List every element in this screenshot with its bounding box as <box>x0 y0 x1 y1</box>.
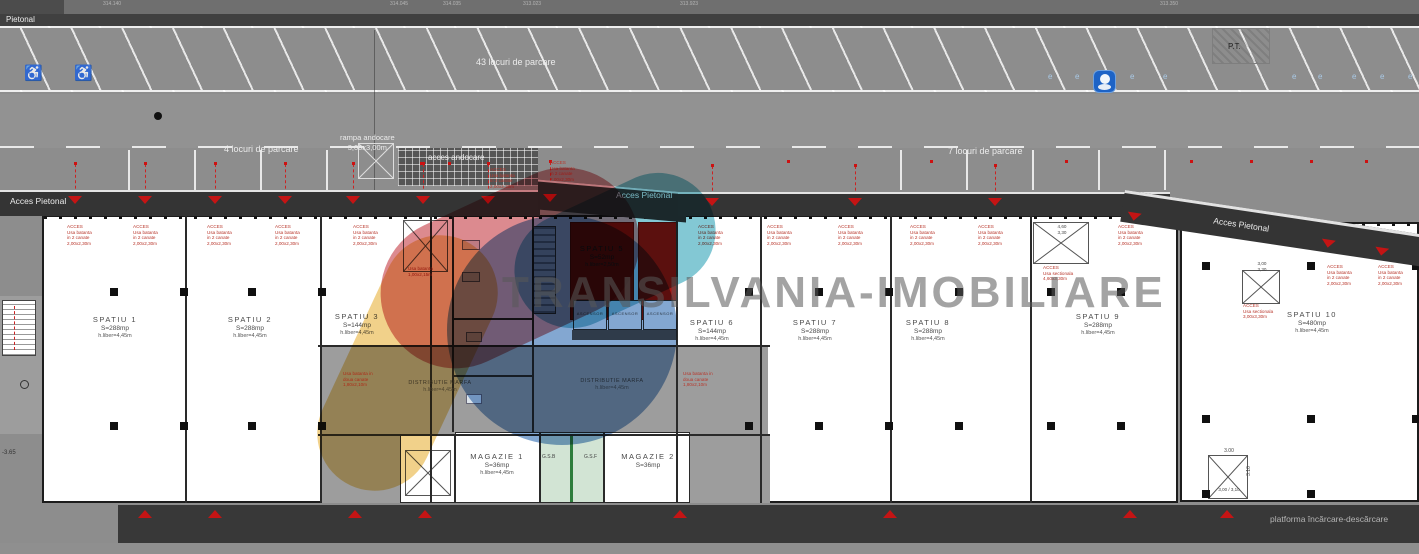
loading-arrow-icon <box>673 510 687 518</box>
entrance-arrow-icon <box>988 198 1002 206</box>
column-marker <box>1047 288 1055 296</box>
door-annotation: ACCESUsa batantain 2 canate2,00x2,30m <box>67 224 92 247</box>
entrance-arrow-icon <box>208 196 222 204</box>
door-annotation: ACCESUsa batantain 2 canate2,00x2,30m <box>767 224 792 247</box>
elevator-cell: ASCENSOR <box>573 300 607 330</box>
elevation-label: 314.045 <box>390 1 408 7</box>
elevation-label: 314.035 <box>443 1 461 7</box>
entrance-arrow-icon <box>848 198 862 206</box>
loading-arrow-icon <box>1220 510 1234 518</box>
red-marker <box>420 162 423 165</box>
red-marker <box>1190 160 1193 163</box>
distribution-corridor <box>322 347 768 434</box>
door-annotation: ACCESUsa batantain 2 canate2,00x2,30m <box>353 224 378 247</box>
loading-arrow-icon <box>138 510 152 518</box>
left-annex-stair <box>2 300 36 356</box>
column-marker <box>815 422 823 430</box>
elevator-threshold <box>572 330 678 340</box>
elevation-label: 314.140 <box>103 1 121 7</box>
top-pedestrian-band <box>0 14 1419 26</box>
column-marker <box>180 422 188 430</box>
parking-stalls-left <box>128 150 390 190</box>
e-parking-marker: e <box>1408 72 1412 81</box>
door-annotation: Usa batanta indoua canate1,80x2,10m <box>343 371 373 388</box>
dim-label: 3,00 / 3,10 <box>1213 487 1245 492</box>
parking-top-label: 43 locuri de parcare <box>476 57 556 69</box>
red-marker <box>711 164 714 167</box>
dim-label: 3.00 <box>1215 448 1243 454</box>
red-marker <box>854 164 857 167</box>
column-marker <box>1307 490 1315 498</box>
column-marker <box>1202 262 1210 270</box>
crossed-box-symbol <box>405 450 451 496</box>
column-marker <box>1047 422 1055 430</box>
access-right-label: Acces Pietonal <box>1213 215 1270 234</box>
driveway <box>0 94 1419 148</box>
column-marker <box>318 288 326 296</box>
e-parking-marker: e <box>1292 72 1296 81</box>
room-label-spatiu-10: SPATIU 10S=480mph.liber=4,45m <box>1272 310 1352 335</box>
entrance-arrow-icon <box>68 196 82 204</box>
column-marker <box>180 288 188 296</box>
entrance-arrow-icon <box>138 196 152 204</box>
door-annotation: ACCESUsa batantain 2 canate2,00x2,30m <box>1327 264 1352 287</box>
pedestrian-band-right <box>678 192 1170 216</box>
loading-arrow-icon <box>208 510 222 518</box>
room-label-spatiu-2: SPATIU 2S=288mph.liber=4,45m <box>210 315 290 340</box>
access-left-label: Acces Pietonal <box>10 196 66 207</box>
e-parking-marker: e <box>1075 72 1079 81</box>
entrance-arrow-icon <box>481 196 495 204</box>
elevation-label: 313.350 <box>1160 1 1178 7</box>
room-label-spatiu-1: SPATIU 1S=288mph.liber=4,45m <box>75 315 155 340</box>
column-marker <box>745 422 753 430</box>
label-gsb: G.S.B <box>542 454 555 461</box>
red-marker <box>1365 160 1368 163</box>
red-marker <box>144 162 147 165</box>
parking-left-label: 4 locuri de parcare <box>224 144 299 156</box>
distribution-corridor <box>322 434 400 503</box>
e-parking-marker: e <box>1318 72 1322 81</box>
red-marker <box>994 164 997 167</box>
loading-arrow-icon <box>418 510 432 518</box>
entrance-arrow-icon <box>1374 247 1389 257</box>
red-marker <box>214 162 217 165</box>
pt-label: P.T. <box>1228 42 1241 52</box>
label-distributie-2: DISTRIBUTIE MARFA h.liber=4,45m <box>572 378 652 392</box>
room-label-spatiu-7: SPATIU 7S=288mph.liber=4,45m <box>775 318 855 343</box>
e-parking-marker: e <box>1163 72 1167 81</box>
room-label-spatiu-5: SPATIU 5 S=52mp h.liber=2,50m <box>562 244 642 269</box>
dim-label: 3,003,30 <box>1248 261 1276 272</box>
room-label-spatiu-8: SPATIU 8S=288mph.liber=4,45m <box>888 318 968 343</box>
manhole-symbol <box>20 380 29 389</box>
parking-stalls-right <box>900 150 1170 190</box>
red-marker <box>930 160 933 163</box>
e-parking-marker: e <box>1380 72 1384 81</box>
column-marker <box>1307 262 1315 270</box>
access-center-label: Acces Pietonal <box>616 190 672 201</box>
red-marker <box>1065 160 1068 163</box>
crossed-box-symbol <box>1242 270 1280 304</box>
dock-label: acces andocare <box>428 153 484 163</box>
entrance-arrow-icon <box>1321 239 1336 249</box>
column-marker <box>1117 288 1125 296</box>
red-marker <box>352 162 355 165</box>
bottom-road <box>0 543 1419 554</box>
door-annotation: Usa batanta1,00x2,15m <box>408 266 433 277</box>
ramp-label: rampa andocare3,00x3,00m <box>340 133 395 153</box>
staircase <box>532 226 556 314</box>
crossed-box-symbol <box>403 220 448 272</box>
column-marker <box>745 288 753 296</box>
room-label-magazie-2: MAGAZIE 2S=36mp <box>608 452 688 470</box>
label-distributie-1: DISTRIBUTIE MARFA h.liber=4,45m <box>400 380 480 394</box>
level-label: -3.65 <box>2 450 16 458</box>
entrance-arrow-icon <box>416 196 430 204</box>
door-annotation: ACCESUsa sectionala3,00x3,30m <box>1243 303 1273 320</box>
door-annotation: ACCESUsa batantain 2 canate2,00x2,30m <box>698 224 723 247</box>
column-marker <box>110 422 118 430</box>
door-annotation: ACCESUsa batantain 2 canate2,00x2,30m <box>550 160 575 183</box>
entrance-arrow-icon <box>543 194 557 202</box>
column-marker <box>1412 415 1419 423</box>
room-label-spatiu-6: SPATIU 6S=144mph.liber=4,45m <box>672 318 752 343</box>
room-label-spatiu-3: SPATIU 3S=144mph.liber=4,45m <box>317 312 397 337</box>
parking-row-top <box>0 26 1419 92</box>
column-marker <box>1202 415 1210 423</box>
wheelchair-icon: ♿ <box>74 64 93 82</box>
door-annotation: Usa batanta indoua canate1,80x2,10m <box>683 371 713 388</box>
red-marker <box>74 162 77 165</box>
red-marker <box>448 162 451 165</box>
e-parking-marker: e <box>1352 72 1356 81</box>
elevator-cell: ASCENSOR <box>608 300 642 330</box>
entrance-arrow-icon <box>278 196 292 204</box>
column-marker <box>110 288 118 296</box>
door-annotation: ACCESUsa batantain 2 canate2,00x2,30m <box>910 224 935 247</box>
red-marker <box>1310 160 1313 163</box>
entrance-arrow-icon <box>1127 212 1142 222</box>
label-gsf: G.S.F <box>584 454 597 461</box>
room-label-magazie-1: MAGAZIE 1S=36mph.liber=4,45m <box>457 452 537 477</box>
column-marker <box>955 422 963 430</box>
loading-arrow-icon <box>348 510 362 518</box>
door-annotation: ACCESUsa batantain 2 canate2,00x2,30m <box>207 224 232 247</box>
entrance-arrow-icon <box>705 198 719 206</box>
door-annotation: ACCESUsa batantain 2 canate2,00x2,30m <box>1118 224 1143 247</box>
survey-point <box>154 112 162 120</box>
red-marker <box>787 160 790 163</box>
top-road-strip <box>0 0 1419 14</box>
column-marker <box>1307 415 1315 423</box>
left-annex-annotation-mark <box>14 306 15 350</box>
red-marker <box>1250 160 1253 163</box>
pietonal-top-label: Pietonal <box>6 15 35 25</box>
column-marker <box>815 288 823 296</box>
door-annotation: ACCESUsa batantain 2 canate2,00x2,30m <box>1378 264 1403 287</box>
map-pin-icon <box>1093 70 1116 93</box>
column-marker <box>955 288 963 296</box>
column-marker <box>248 422 256 430</box>
floor-plan-canvas: Pietonal 43 locuri de parcare ♿ ♿ P.T. 4… <box>0 0 1419 554</box>
column-marker <box>318 422 326 430</box>
column-marker <box>885 288 893 296</box>
dim-label: 4,603,30 <box>1048 224 1076 235</box>
door-annotation: ACCESUsa batantain 2 canate2,00x2,30m <box>978 224 1003 247</box>
loading-arrow-icon <box>883 510 897 518</box>
e-parking-marker: e <box>1130 72 1134 81</box>
distribution-corridor <box>690 434 770 503</box>
red-marker <box>284 162 287 165</box>
elevation-label: 313.023 <box>523 1 541 7</box>
column-marker <box>1117 422 1125 430</box>
e-parking-marker: e <box>1048 72 1052 81</box>
loading-arrow-icon <box>1123 510 1137 518</box>
door-annotation: ACCESUsa batantain 2 canate2,00x2,30m <box>838 224 863 247</box>
room-label-spatiu-9: SPATIU 9S=288mph.liber=4,45m <box>1058 312 1138 337</box>
sanitary-divider-wall <box>570 434 573 502</box>
column-marker <box>1202 490 1210 498</box>
platform-label: platforma încărcare-descărcare <box>1270 514 1388 525</box>
crossed-box-symbol <box>1208 455 1248 499</box>
entrance-arrow-icon <box>346 196 360 204</box>
door-annotation: ACCESUsa batantain 2 canate2,00x2,30m <box>490 167 515 190</box>
red-marker <box>487 162 490 165</box>
top-dark-corner <box>0 0 64 14</box>
door-annotation: ACCESUsa batantain 2 canate2,00x2,30m <box>275 224 300 247</box>
dim-label: 3.10 <box>1246 466 1252 476</box>
pt-technical-box <box>1212 28 1270 64</box>
elevation-label: 313.923 <box>680 1 698 7</box>
column-marker <box>885 422 893 430</box>
door-annotation: ACCESUsa batantain 2 canate2,00x2,30m <box>133 224 158 247</box>
parking-right-label: 7 locuri de parcare <box>948 146 1023 158</box>
wheelchair-icon: ♿ <box>24 64 43 82</box>
door-annotation: ACCESUsa sectionala4,60x3,30m <box>1043 265 1073 282</box>
column-marker <box>248 288 256 296</box>
lane-marking <box>0 146 1419 148</box>
